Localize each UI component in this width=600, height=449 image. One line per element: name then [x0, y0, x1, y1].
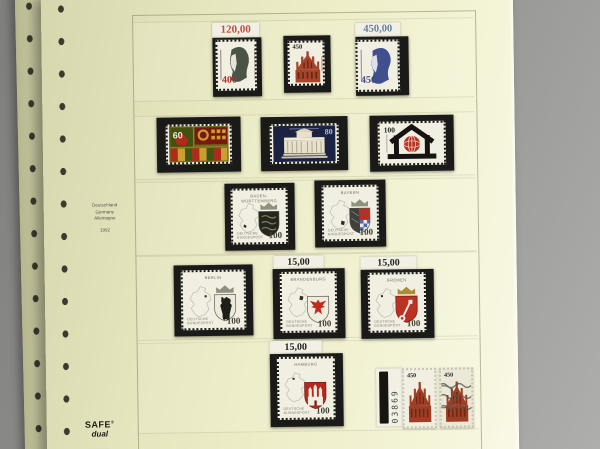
state-name: BAYERN — [323, 190, 376, 196]
stamp-mount: 400 — [212, 37, 262, 97]
margin-price-15: 15,00 — [284, 342, 307, 352]
stamp-value: 450 — [361, 76, 376, 86]
stamp-value: 80 — [325, 128, 333, 136]
margin-price-120: 120,00 — [221, 24, 251, 35]
stamp-arms-baden-wuerttemberg: BADEN-WÜRTTEMBERG DEUTSCHE BUNDESPOST 10… — [230, 188, 288, 245]
margin-price-15: 15,00 — [377, 258, 400, 268]
stamp-value: 100 — [316, 406, 330, 415]
cancellation-mark — [441, 369, 472, 425]
punch-holes-page — [54, 0, 75, 449]
counter-black-bar — [379, 372, 389, 424]
state-name: BERLIN — [183, 275, 244, 281]
inscription: DEUTSCHE BUNDESPOST — [284, 406, 310, 415]
stamp-value: 100 — [227, 317, 241, 326]
logo-brand: SAFE — [85, 419, 111, 429]
stamp-450-building-used: 450 — [439, 367, 474, 427]
stamp-mount: 450 — [283, 35, 331, 93]
stamp-arms-bayern: BAYERN DEUTSCH — [321, 185, 379, 242]
safe-dual-logo: SAFE® dual — [85, 420, 115, 438]
inscription: DEUTSCHE BUNDESPOST — [237, 231, 263, 240]
brick-church-artwork — [293, 50, 323, 84]
inscription: DEUTSCHE BUNDESPOST — [187, 317, 213, 326]
stamp-100-house-globe: 100 — [378, 121, 447, 166]
country-fr: Allemagne — [88, 215, 122, 222]
stamp-arms-brandenburg: BRANDENBURG DEUTSCHE BUNDESPOST 100 — [280, 271, 338, 333]
logo-sub: dual — [85, 430, 115, 438]
stamp-arms-bremen: BREMEN DEUTSCHE BUNDESPOST 100 — [368, 272, 427, 333]
stamp-value: 100 — [318, 319, 332, 328]
sheet-counter-number: 03869 — [390, 371, 400, 423]
stamp-450-building-mint: 450 — [402, 368, 437, 428]
stamp-60-tapestry: 60 — [166, 124, 233, 165]
registered-mark: ® — [111, 419, 115, 424]
stamp-450-building: 450 — [287, 40, 325, 86]
page-country-label: Deutschland Germany Allemagne 1992 — [88, 202, 122, 233]
margin-price-450: 450,00 — [363, 24, 392, 35]
margin-price-15: 15,00 — [287, 257, 310, 267]
stamp-80-opera: 80 — [270, 123, 340, 164]
stamp-mount: 100 — [369, 115, 454, 172]
state-name: BRANDENBURG — [282, 276, 335, 282]
mount-strip-band — [135, 177, 476, 256]
stamp-mount: BADEN-WÜRTTEMBERG DEUTSCHE BUNDESPOST 10… — [224, 183, 295, 251]
margin-label-tab: 15,00 — [360, 256, 416, 270]
stamp-value: 450 — [407, 373, 416, 379]
country-de: Deutschland — [88, 202, 122, 209]
stamp-mount: 80 — [260, 116, 348, 171]
margin-label-tab: 15,00 — [270, 340, 322, 354]
stamp-450-portrait: 450 — [355, 39, 400, 92]
stamp-arms-hamburg: HAMBURG DEUTSCHE BUNDESPOST 100 — [277, 356, 336, 420]
album-page: Deutschland Germany Allemagne 1992 SAFE®… — [41, 0, 520, 449]
stamp-value: 100 — [384, 126, 395, 134]
inscription: DEUTSCHE BUNDESPOST — [286, 319, 312, 328]
stamp-mount: BREMEN DEUTSCHE BUNDESPOST 100 — [361, 269, 435, 339]
stamp-value: 100 — [407, 319, 421, 328]
stamp-value: 450 — [292, 45, 302, 52]
margin-label-tab: 450,00 — [355, 22, 400, 37]
germany-map-artwork — [188, 285, 213, 319]
stamp-400-portrait: 400 — [215, 39, 257, 91]
inscription: DEUTSCHE BUNDESPOST — [374, 319, 400, 328]
album-photo: Deutschland Germany Allemagne 1992 SAFE®… — [0, 0, 600, 449]
inscription: DEUTSCHE BUNDESPOST — [328, 228, 354, 237]
stamp-mount: BERLIN DEUTSCHE BUNDESPOST 100 — [174, 264, 254, 336]
stamp-mount: 60 — [156, 117, 241, 173]
stamp-arms-berlin: BERLIN DEUTSCHE BUNDESPOST 100 — [181, 269, 247, 330]
stamp-mount: 450 — [355, 36, 409, 96]
stamp-value: 100 — [269, 231, 283, 240]
page-year: 1992 — [88, 227, 122, 234]
stamp-mount: BRANDENBURG DEUTSCHE BUNDESPOST 100 — [273, 268, 346, 339]
margin-label-tab: 15,00 — [273, 255, 323, 269]
stamp-mount: HAMBURG DEUTSCHE BUNDESPOST 100 — [270, 353, 344, 427]
stamp-value: 60 — [173, 130, 183, 140]
margin-label-tab: 120,00 — [212, 22, 259, 38]
stamp-mount: BAYERN DEUTSCH — [314, 180, 386, 248]
stamp-value: 400 — [222, 76, 237, 86]
stamp-value: 100 — [360, 228, 374, 237]
state-name: BREMEN — [370, 277, 424, 283]
brick-church-artwork — [406, 381, 434, 425]
state-name: HAMBURG — [279, 361, 333, 367]
